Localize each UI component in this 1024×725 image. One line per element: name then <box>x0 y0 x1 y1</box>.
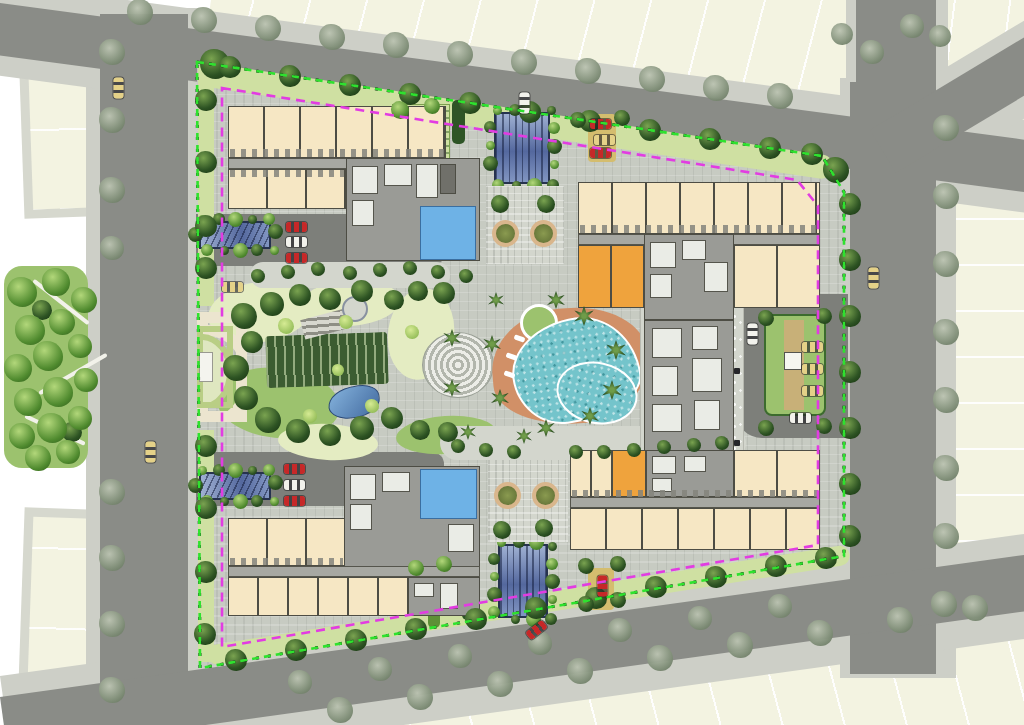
master-plan-canvas <box>0 0 1024 725</box>
site-boundary-lines <box>0 0 1024 725</box>
